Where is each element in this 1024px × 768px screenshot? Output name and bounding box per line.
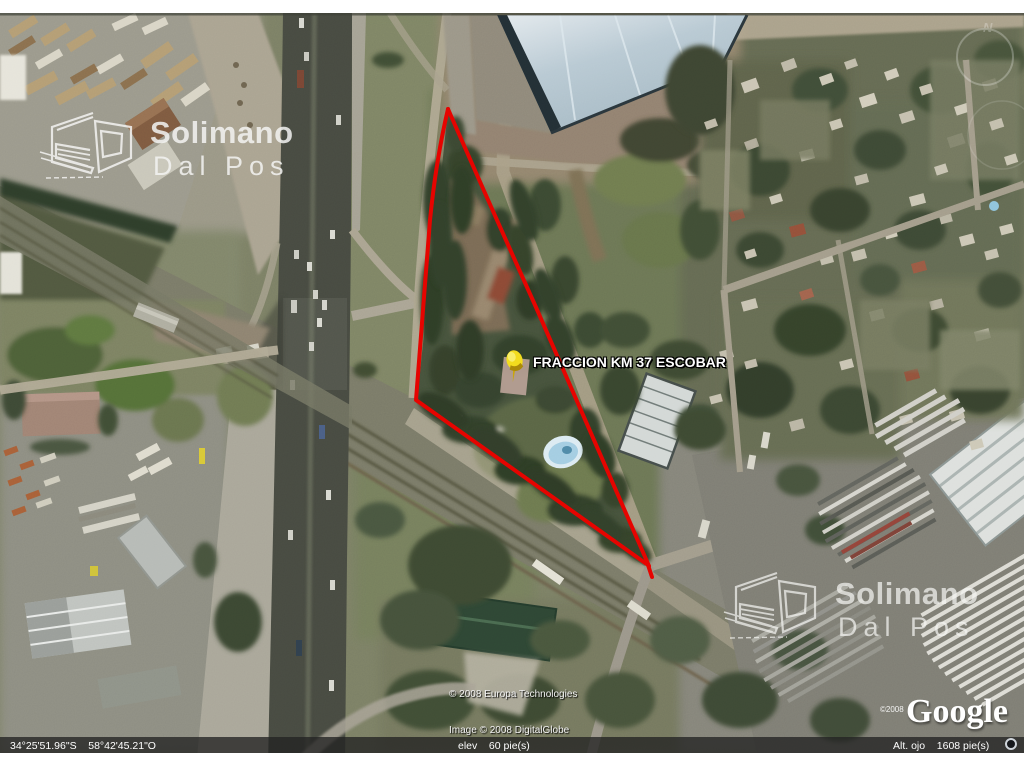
svg-text:N: N — [983, 20, 993, 35]
svg-text:©2008: ©2008 — [880, 705, 904, 714]
svg-text:Solimano: Solimano — [150, 115, 294, 150]
svg-text:elev 60 pie(s): elev 60 pie(s) — [458, 740, 530, 752]
svg-text:Alt. ojo 1608 pie(s): Alt. ojo 1608 pie(s) — [893, 740, 989, 752]
svg-text:Image © 2008 DigitalGlobe: Image © 2008 DigitalGlobe — [449, 725, 570, 736]
svg-text:34°25'51.96"S 58°42'45.21"O: 34°25'51.96"S 58°42'45.21"O — [10, 740, 156, 752]
svg-text:Google: Google — [906, 693, 1008, 730]
svg-text:Dal Pos: Dal Pos — [838, 612, 975, 642]
svg-text:Dal Pos: Dal Pos — [153, 151, 290, 181]
svg-text:© 2008 Europa Technologies: © 2008 Europa Technologies — [449, 689, 577, 700]
svg-text:Solimano: Solimano — [835, 576, 979, 611]
svg-text:FRACCION KM 37 ESCOBAR: FRACCION KM 37 ESCOBAR — [533, 354, 726, 370]
